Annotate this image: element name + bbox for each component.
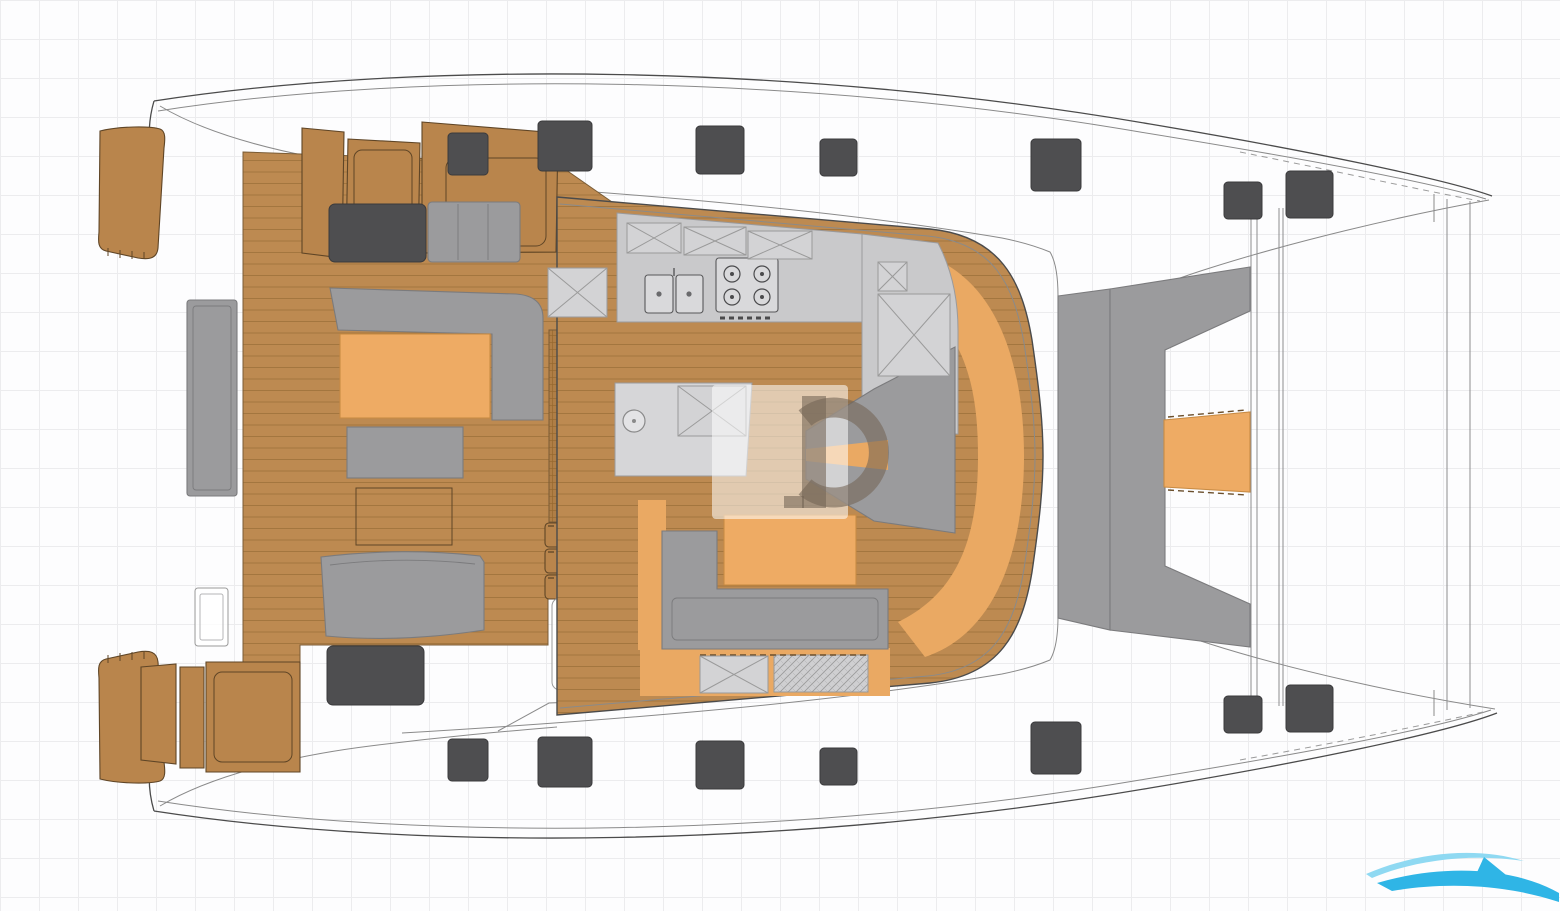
storage-locker-x xyxy=(700,656,768,693)
dinette-cushion xyxy=(340,334,490,418)
deck-hatch xyxy=(327,646,424,705)
cockpit-seat-stbd-c xyxy=(206,662,300,772)
forward-cockpit-table xyxy=(1164,412,1250,492)
deck-hatch xyxy=(820,139,857,176)
storage-locker-x xyxy=(878,294,950,376)
port-hull-dashed xyxy=(1240,152,1480,201)
catamaran-deck-plan: G xyxy=(0,0,1560,911)
galley-round-sink xyxy=(623,410,645,432)
port-transom-steps xyxy=(99,127,165,259)
bow-bridle-lines xyxy=(1447,199,1470,710)
cockpit-seat-stbd-a xyxy=(141,664,176,764)
dinette-bench xyxy=(347,427,463,478)
deck-hatch xyxy=(448,133,488,175)
dealer-logo-swoosh xyxy=(1366,853,1559,902)
storage-locker-x xyxy=(627,223,681,253)
stbd-hull-dashed xyxy=(1240,712,1483,760)
galley-stove xyxy=(716,258,778,318)
saloon-sofa-cushion xyxy=(724,515,856,585)
deck-hatch xyxy=(448,739,488,781)
deck-hatch xyxy=(538,737,592,787)
forward-beam xyxy=(1251,208,1283,706)
deck-hatch xyxy=(696,741,744,789)
cockpit-seat-stbd-b xyxy=(180,667,204,768)
deck-hatch xyxy=(1224,696,1262,733)
storage-locker-x xyxy=(748,231,812,259)
logo-fin xyxy=(1473,857,1511,881)
deck-hatch xyxy=(1286,171,1333,218)
forward-cockpit xyxy=(1058,267,1250,647)
deck-hatch xyxy=(1031,722,1081,774)
cockpit-side-bench xyxy=(187,300,237,496)
deck-hatch xyxy=(820,748,857,785)
storage-locker-x xyxy=(548,268,607,317)
deck-hatch xyxy=(1031,139,1081,191)
storage-locker-x xyxy=(684,227,746,255)
deck-hatch xyxy=(329,204,426,262)
dinette-curved-sofa xyxy=(321,552,484,639)
storage-locker-x xyxy=(878,262,907,291)
deck-hatch xyxy=(696,126,744,174)
port-companionway-steps xyxy=(428,202,520,262)
berth-infill-hatched xyxy=(774,655,868,692)
deck-hatch xyxy=(1224,182,1262,219)
deck-hatch xyxy=(1286,685,1333,732)
deck-hatch xyxy=(538,121,592,171)
forward-cockpit-bench-aft xyxy=(1058,289,1110,630)
logo-wave-blue xyxy=(1377,871,1559,902)
